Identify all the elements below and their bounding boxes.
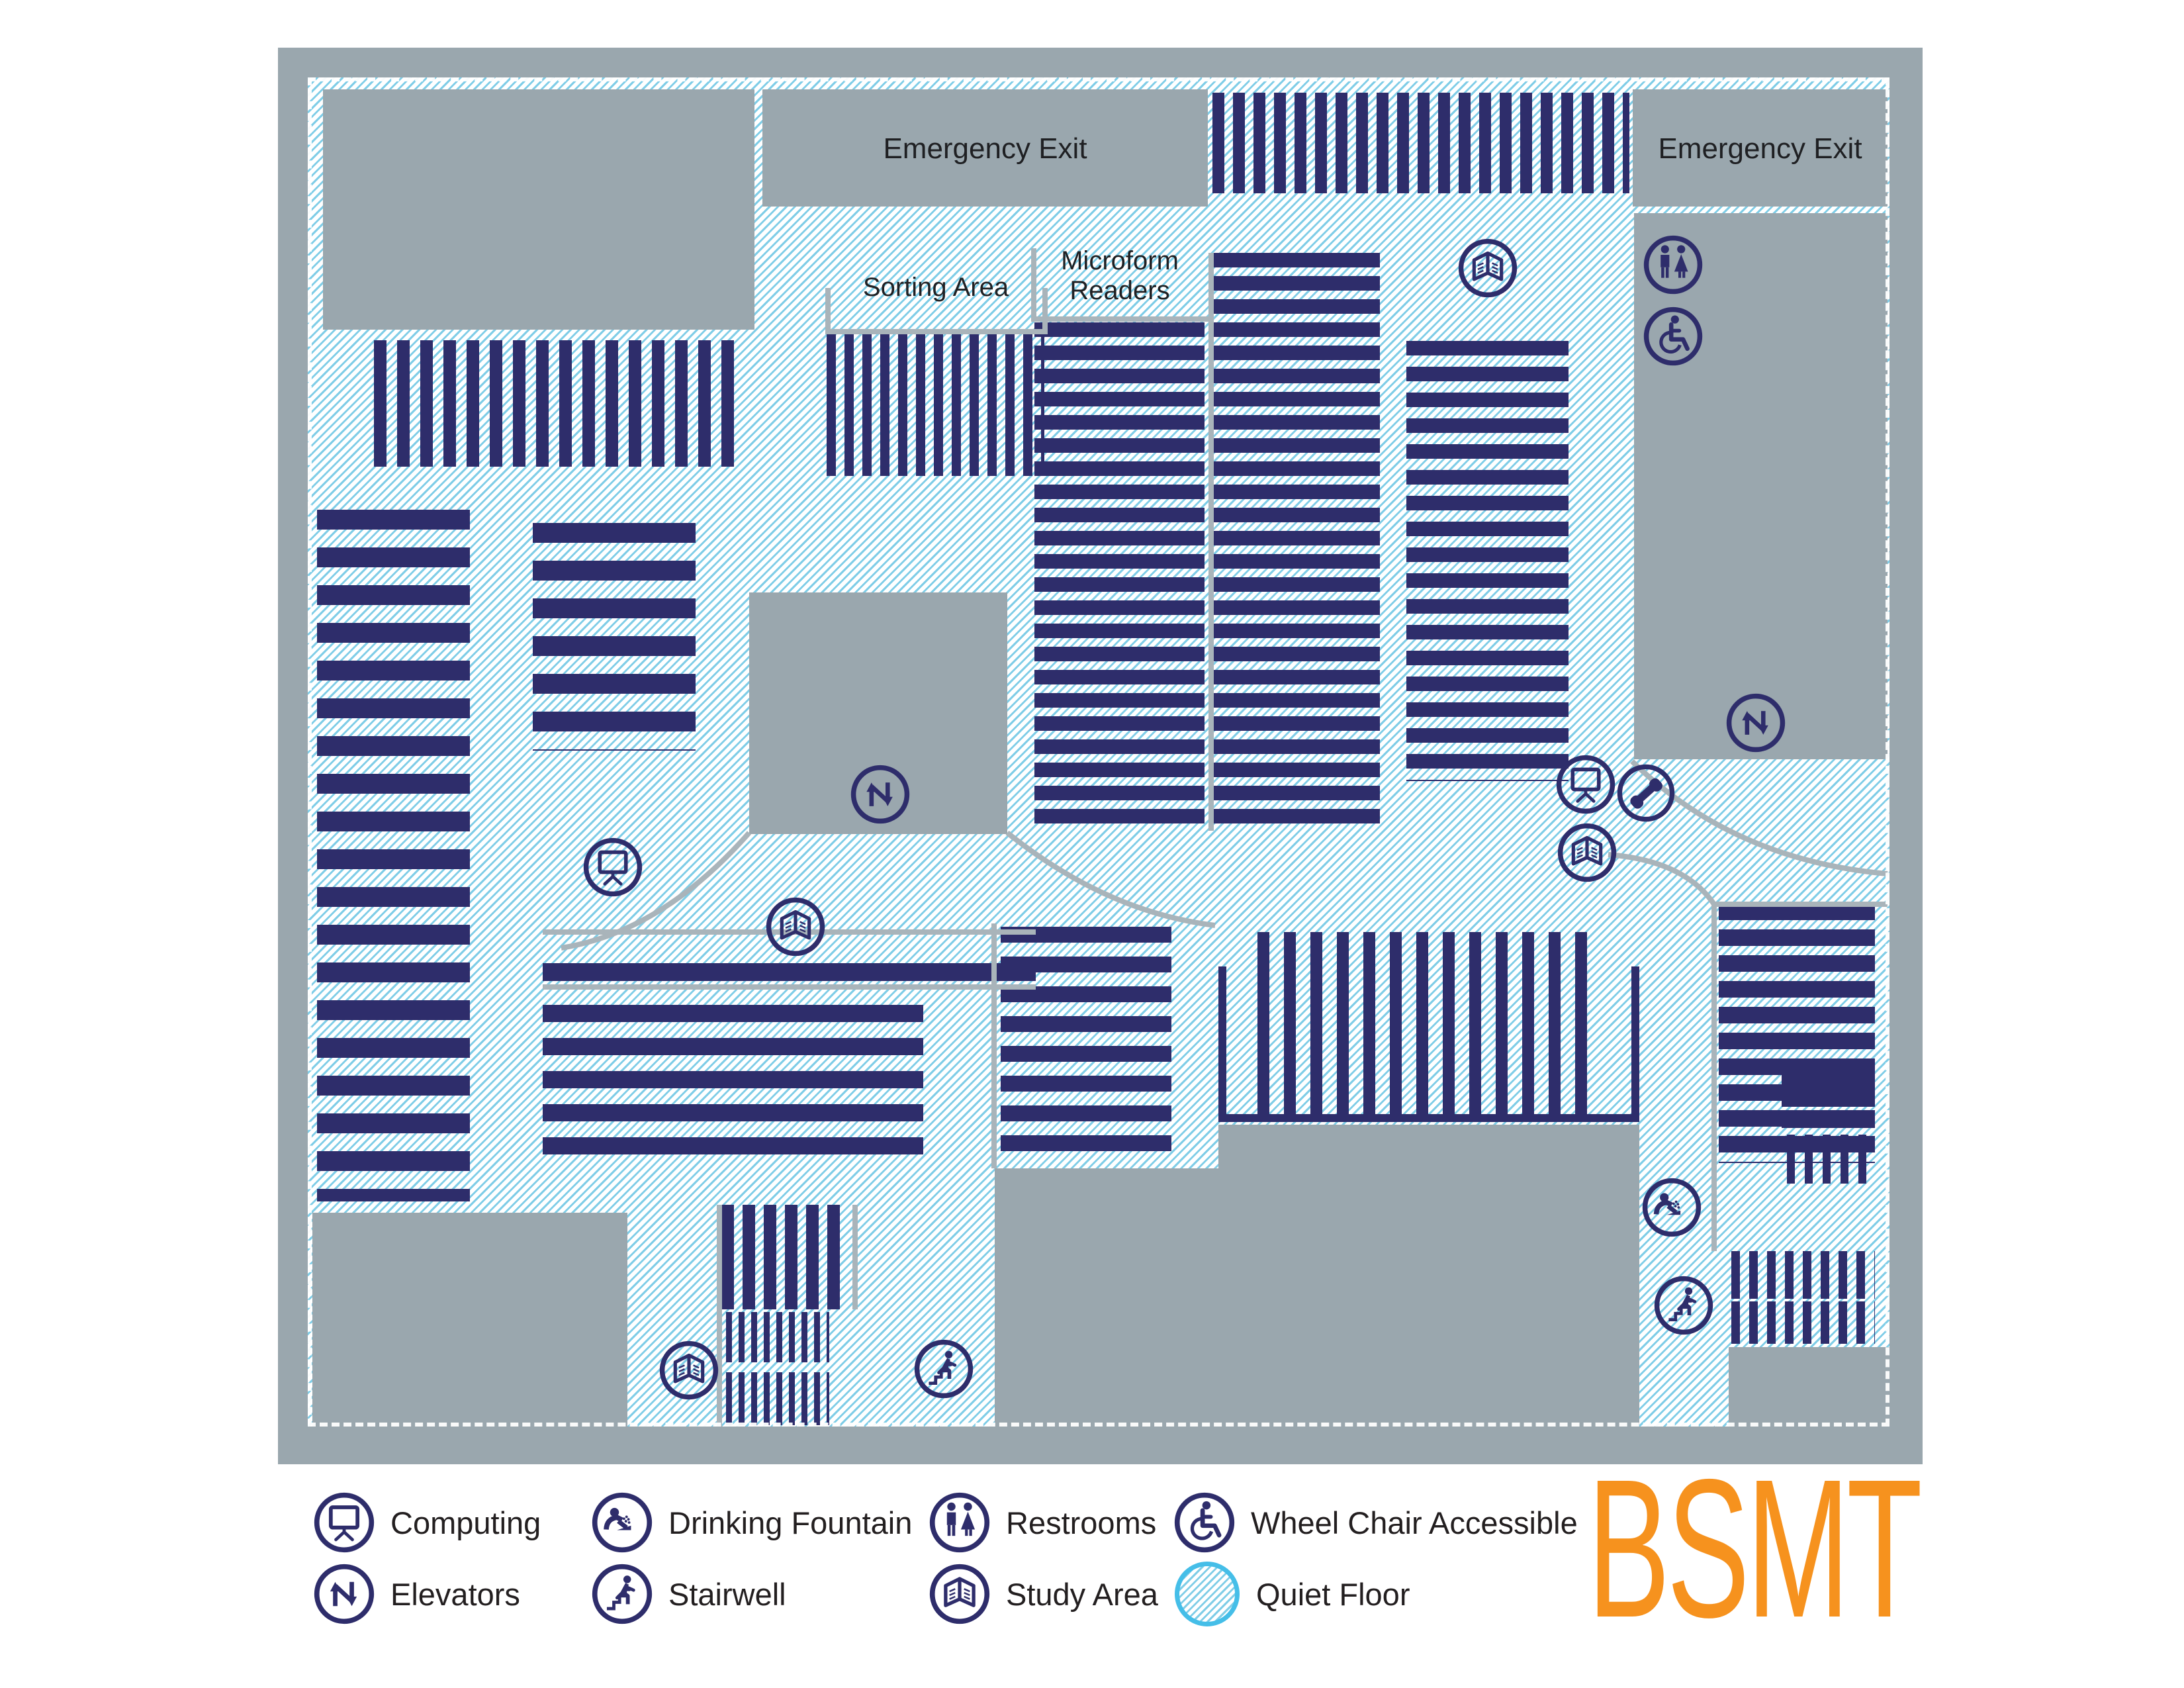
study-area-icon [1457,237,1519,299]
stack-sorting-area [827,334,1044,476]
drinking-fountain-icon [1641,1176,1703,1239]
legend-item-restrooms: Restrooms [928,1491,1156,1554]
restrooms-icon [1642,234,1704,296]
stack-long-shelf-bar [543,963,1036,981]
room-top-left [323,89,754,330]
quiet-floor-swatch [1175,1562,1240,1626]
stack-upper-left-wide [374,340,745,467]
legend-label: Wheel Chair Accessible [1251,1505,1578,1541]
wall [1711,904,1717,1251]
legend-item-drinking-fountain: Drinking Fountain [590,1491,912,1554]
legend-item-wheel-chair-accessible: Wheel Chair Accessible [1173,1491,1578,1554]
stairwell-icon [913,1338,975,1400]
microform-line2: Readers [1032,276,1207,306]
legend-label: Restrooms [1006,1505,1156,1541]
study-area-icon [658,1339,720,1401]
computing-icon [1555,753,1617,816]
emergency-exit-label-right: Emergency Exit [1633,132,1888,165]
stack-right-teeth [1787,1135,1875,1184]
stack-bottom-stairs-a [721,1205,847,1309]
microform-line1: Microform [1032,246,1207,276]
legend-label: Elevators [390,1576,520,1613]
study-area-icon [764,896,827,958]
legend-item-elevators: Elevators [312,1562,520,1626]
legend-label: Study Area [1006,1576,1158,1613]
study-area-icon [1556,821,1618,884]
room-bottom-center-left [995,1168,1222,1427]
legend-item-computing: Computing [312,1491,541,1554]
legend-item-study-area: Study Area [928,1562,1158,1626]
wall [1031,316,1214,322]
wheel-chair-accessible-icon [1173,1491,1236,1554]
emergency-exit-label-center: Emergency Exit [762,132,1208,165]
stack-microform-left [1034,322,1205,831]
legend-label: Drinking Fountain [668,1505,912,1541]
room-bottom-left [312,1213,627,1427]
computing-icon [582,836,644,898]
legend-label: Quiet Floor [1256,1576,1410,1613]
wheel-chair-accessible-icon [1642,305,1704,367]
wall [1714,902,1888,907]
stack-microform-right [1212,253,1380,831]
stack-center-column [1406,341,1569,781]
stack-bottom-stairs-b [726,1312,829,1362]
wall [825,329,1048,334]
library-floor-map-page: Emergency Exit Emergency Exit Sorting Ar… [0,0,2184,1688]
study-area-icon [928,1562,991,1626]
legend-item-stairwell: Stairwell [590,1562,786,1626]
stack-bottom-center [543,1005,923,1165]
telephone-icon [1615,763,1676,823]
stack-bottom-stairs-c [726,1372,829,1425]
stack-top-vertical [1212,93,1629,193]
microform-readers-label: Microform Readers [1032,246,1207,306]
stack-bottom-right-a [1731,1251,1875,1299]
legend-label: Stairwell [668,1576,786,1613]
stack-left-tall [317,510,470,1201]
room-bottom-center-right [1218,1125,1639,1427]
stack-enclosed-vertical [1257,932,1601,1114]
stack-left-second [533,523,696,751]
elevators-icon [312,1562,376,1626]
stairwell-icon [590,1562,654,1626]
sorting-area-label: Sorting Area [827,273,1045,303]
computing-icon [312,1491,376,1554]
stack-bottom-right-b [1731,1301,1875,1344]
drinking-fountain-icon [590,1491,654,1554]
stairwell-icon [1653,1274,1715,1336]
elevators-icon [849,763,911,825]
legend-label: Computing [390,1505,541,1541]
room-bottom-right-corner [1729,1347,1889,1427]
stack-right-small [1782,1072,1875,1132]
restrooms-icon [928,1491,991,1554]
wall [543,984,1036,990]
wall [991,923,997,1168]
elevators-icon [1725,692,1787,754]
floor-code: BSMT [1588,1464,1919,1634]
stack-bottom-mid [1001,927,1171,1165]
wall [1208,253,1214,831]
legend-item-quiet-floor: Quiet Floor [1173,1562,1410,1626]
wall [852,1205,858,1309]
